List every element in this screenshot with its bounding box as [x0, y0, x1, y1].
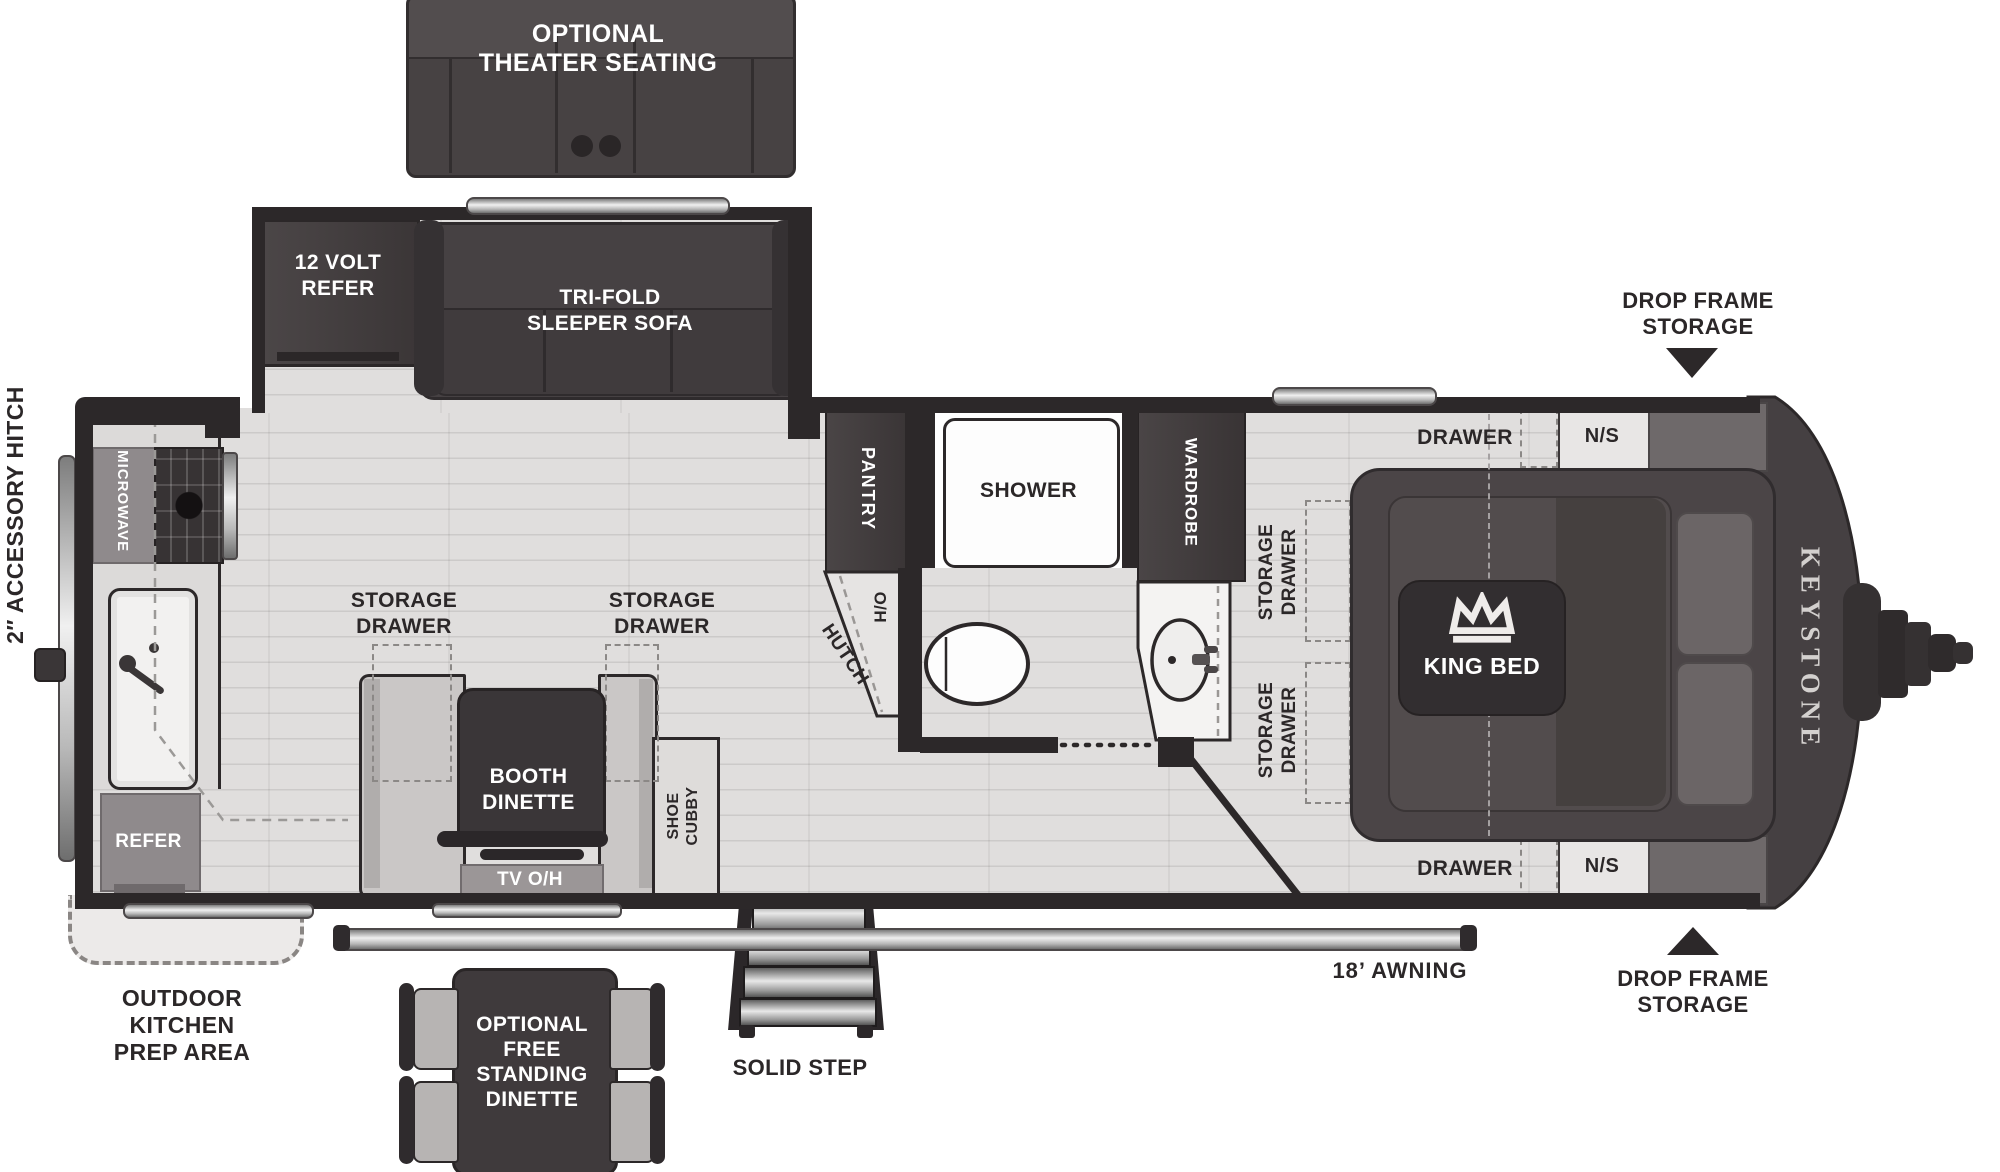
solid-step-label: SOLID STEP [730, 1055, 870, 1082]
theater-seating-label: OPTIONAL THEATER SEATING [448, 20, 748, 78]
grab-rail-rear [123, 903, 314, 919]
bath-wall-left-lower [898, 568, 922, 752]
brand-label: KEYSTONE [1794, 509, 1827, 789]
pantry-label: PANTRY [856, 414, 878, 564]
drop-frame-arrow-up [1667, 927, 1719, 955]
bath-wall-left-upper [905, 413, 935, 568]
shower-label: SHOWER [943, 478, 1114, 504]
slideout-wall-right [788, 207, 812, 413]
slideout-wall-left [252, 207, 265, 413]
outdoor-kitchen-label: OUTDOOR KITCHEN PREP AREA [77, 985, 287, 1066]
nightstand-label-bottom: N/S [1558, 854, 1646, 878]
storage-drawer-bed-label-top: STORAGE DRAWER [1255, 497, 1301, 647]
sink-drain [1168, 656, 1176, 664]
wall-rear [75, 397, 93, 909]
drop-frame-label-bottom: DROP FRAME STORAGE [1593, 966, 1793, 1018]
sink-faucet-spout [1192, 654, 1210, 665]
sleeper-sofa-label: TRI-FOLD SLEEPER SOFA [460, 285, 760, 336]
bath-wall-stub [1158, 737, 1194, 767]
counter-dash-line [155, 418, 348, 820]
drawer-label-bottom: DRAWER [1405, 856, 1525, 882]
shower-wall-right [1122, 413, 1138, 568]
drop-frame-arrow-down [1666, 348, 1718, 378]
storage-drawer-label-left: STORAGE DRAWER [344, 588, 464, 639]
shoe-cubby-label: SHOE CUBBY [664, 736, 702, 896]
booth-dinette-label: BOOTH DINETTE [457, 764, 600, 815]
drop-frame-label-top: DROP FRAME STORAGE [1598, 288, 1798, 340]
storage-drawer-label-right: STORAGE DRAWER [602, 588, 722, 639]
slideout-window [466, 197, 730, 215]
outdoor-refer-label: REFER [100, 830, 197, 853]
storage-drawer-bed-label-bottom: STORAGE DRAWER [1255, 655, 1301, 805]
bedroom-window [1272, 387, 1437, 406]
wall-top-rear-notch [205, 425, 240, 438]
toilet [926, 624, 1028, 704]
nightstand-label-top: N/S [1558, 424, 1646, 448]
slideout-wall-step [788, 413, 820, 439]
overhead-label: O/H [869, 577, 890, 637]
sink-faucet [1204, 666, 1218, 673]
sink-faucet [1204, 646, 1218, 653]
free-standing-dinette-label: OPTIONAL FREE STANDING DINETTE [452, 1012, 612, 1112]
wall-top-rear [75, 397, 240, 425]
bath-door-panel [920, 737, 1058, 753]
refer-12v-label: 12 VOLT REFER [262, 250, 414, 301]
microwave-label: MICROWAVE [113, 426, 131, 576]
wall-bottom [75, 893, 1760, 909]
awning-label: 18’ AWNING [1300, 958, 1500, 985]
grab-rail-mid [432, 903, 622, 918]
accessory-hitch-label: 2″ ACCESSORY HITCH [1, 385, 29, 645]
tv-overhead-label: TV O/H [460, 868, 600, 891]
drawer-label-top: DRAWER [1405, 425, 1525, 451]
wardrobe-label: WARDROBE [1180, 412, 1201, 572]
rv-floor-plan: KING BED [0, 0, 2000, 1172]
